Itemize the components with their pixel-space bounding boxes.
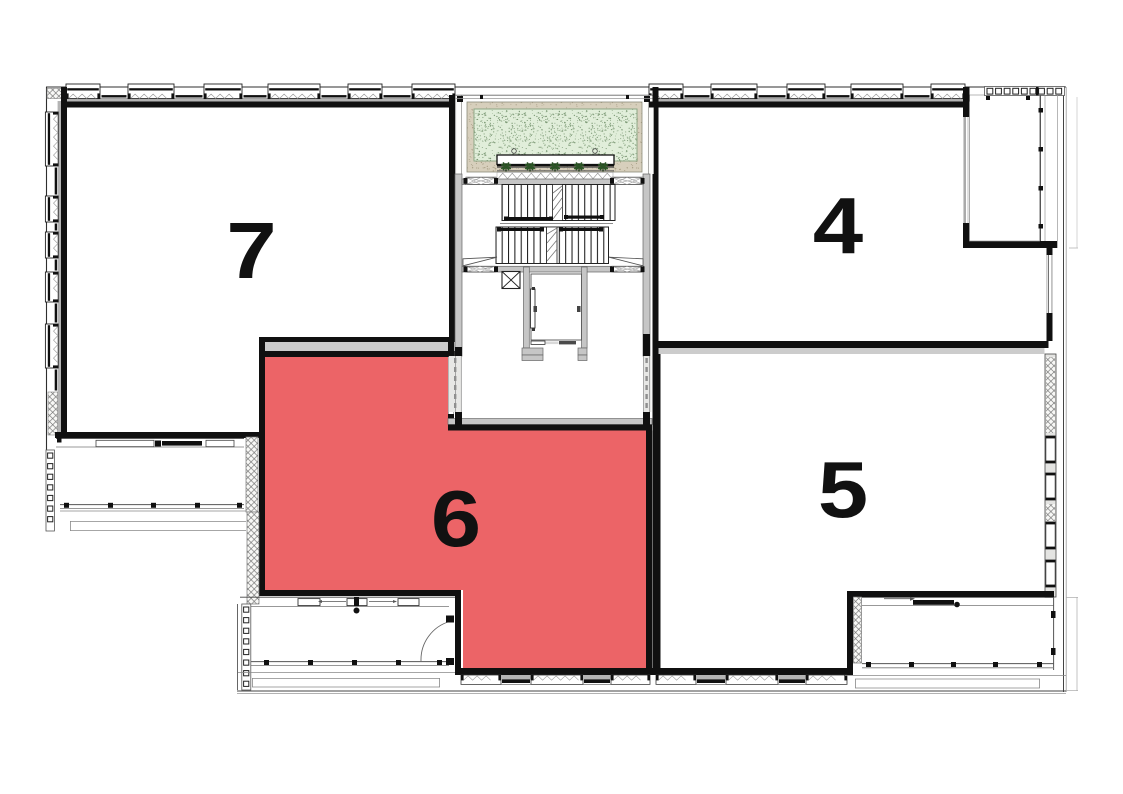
svg-text:4: 4 <box>813 182 863 271</box>
svg-text:5: 5 <box>818 446 868 535</box>
svg-text:6: 6 <box>431 475 481 564</box>
svg-text:7: 7 <box>226 207 276 296</box>
